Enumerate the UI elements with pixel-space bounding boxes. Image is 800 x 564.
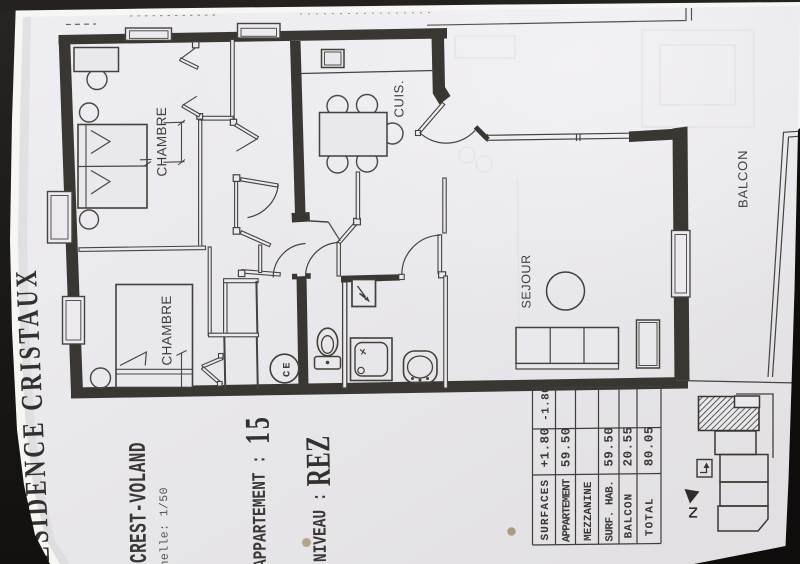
svg-text:MEZZANINE: MEZZANINE bbox=[583, 481, 595, 541]
svg-text:CHAMBRE: CHAMBRE bbox=[154, 107, 170, 177]
svg-text:APPARTEMENT :: APPARTEMENT : bbox=[250, 455, 273, 564]
svg-text:NIVEAU :: NIVEAU : bbox=[310, 492, 332, 562]
svg-text:Echelle: 1/50: Echelle: 1/50 bbox=[158, 487, 172, 564]
svg-text:+1.80: +1.80 bbox=[539, 427, 553, 467]
svg-text:SURF. HAB.: SURF. HAB. bbox=[605, 481, 617, 542]
svg-text:BALCON: BALCON bbox=[624, 493, 636, 539]
svg-text:80.05: 80.05 bbox=[643, 426, 657, 466]
svg-text:CE: CE bbox=[282, 360, 294, 377]
svg-text:BALCON: BALCON bbox=[735, 150, 751, 208]
svg-text:CUIS.: CUIS. bbox=[391, 80, 406, 118]
svg-text:59.50: 59.50 bbox=[560, 427, 574, 467]
svg-text:APPARTEMENT: APPARTEMENT bbox=[562, 478, 574, 542]
svg-text:SEJOUR: SEJOUR bbox=[519, 254, 533, 308]
svg-text:SURFACES: SURFACES bbox=[540, 479, 552, 541]
svg-text:CREST-VOLAND: CREST-VOLAND bbox=[126, 442, 154, 563]
svg-text:20.55: 20.55 bbox=[622, 426, 636, 466]
svg-text:REZ: REZ bbox=[299, 435, 338, 486]
svg-text:TOTAL: TOTAL bbox=[645, 497, 657, 536]
svg-text:15: 15 bbox=[238, 414, 277, 445]
svg-text:-1.80: -1.80 bbox=[541, 386, 553, 421]
svg-text:59.50: 59.50 bbox=[603, 427, 617, 467]
svg-text:CHAMBRE: CHAMBRE bbox=[159, 295, 175, 365]
